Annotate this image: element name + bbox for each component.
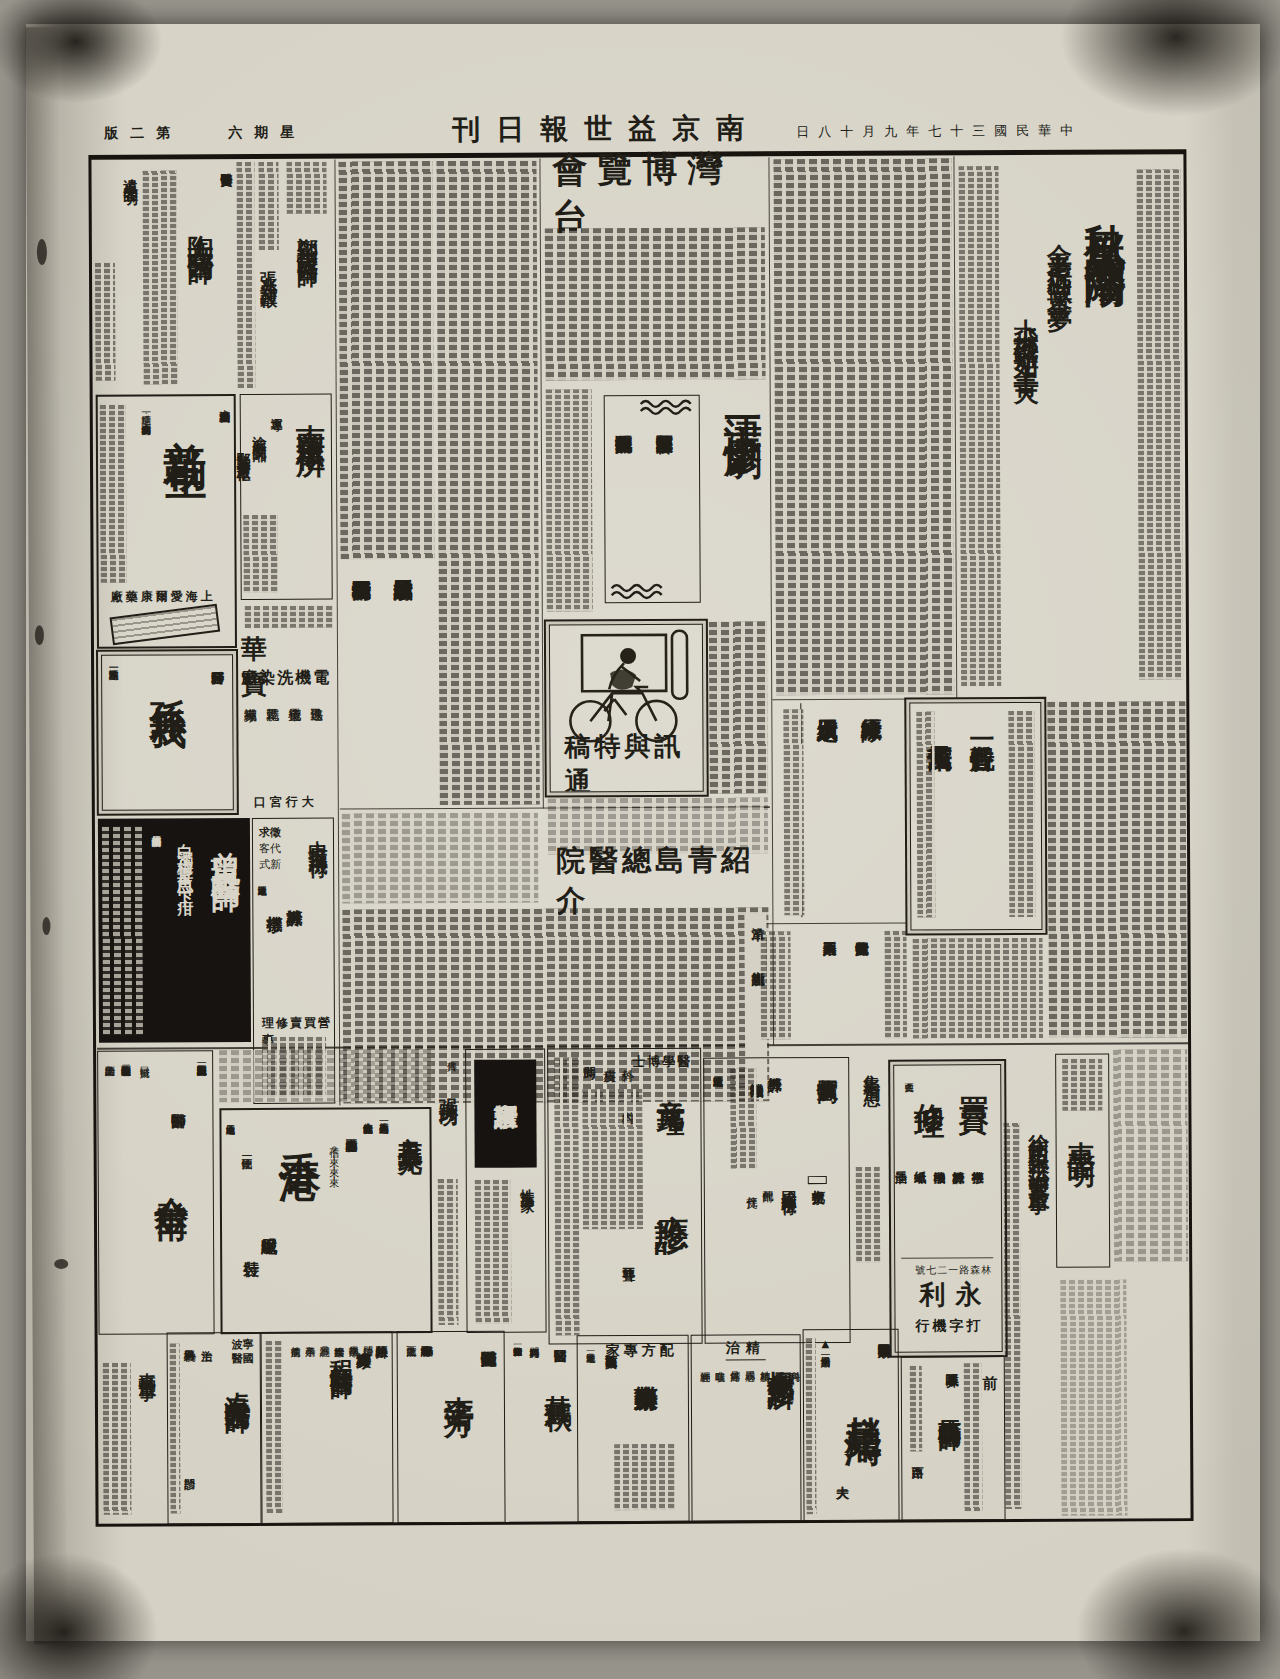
shenyang-article: 秋風裏的瀋陽 金老虎猶做黃金夢 上飛機難如上青天 [956,157,1187,698]
ad-doctor-name: 佘登甫 [153,1169,191,1184]
column-label: 稿特與訊通 [564,729,702,793]
text-columns-texture [964,1363,983,1511]
ad-address: 地址太平路一〇九號 [586,1346,597,1514]
special-column-box: 稿特與訊通 [549,624,704,793]
text-columns-texture [1136,169,1183,679]
ad-pre: 胃病國醫專家 [875,1334,892,1380]
ad-item-list: 內科兒科 花柳痔眼喉 肺癆結核 心腸胃病 筋骨疼痛 咳喘吐血 神經衰弱 [698,1363,804,1514]
text-columns-texture [1062,1059,1102,1111]
ad-zeng-doctor: 曾現忠醫師 白濁梅毒魚口下疳 採用最新科學有效藥法 [98,818,251,1043]
ad-name: 香港 [276,1118,323,1134]
subhead: 津國行收兌黃金 [846,931,879,1041]
text-columns-texture [760,931,791,1039]
text-columns-texture [266,1341,283,1513]
ad-line: 採用最新科學有效藥法 [151,829,163,1033]
subhead: 三週來共十八兩 [814,931,847,1041]
ad-title: 修理 [913,1079,947,1091]
text-columns-texture [342,813,538,904]
text-columns-texture [1008,711,1035,917]
ad-line: 遺精一症：全國藥房均有出售 [141,407,153,577]
subhead: 積極籌備十月廿五揭幕 [341,565,384,801]
subhead: 天津經檢隊 [849,703,894,917]
ad-sub: 行機字打 [916,1317,984,1335]
ad-li-doctor: 金鍼醫師 李靖方 專治中風不語半身不遂 四肢麻木筋骨疼痛 上吐下瀉肚痛 [397,1331,506,1524]
text-columns-texture [245,606,333,628]
text-columns-texture [170,1343,181,1513]
ad-pre: 士博學醫 [632,1053,692,1071]
text-columns-texture [258,162,278,250]
subhead: 四天之成績 [800,703,850,917]
ad-strong-body: 真傳 强身内功 [433,1049,464,1333]
ad-title: 買賣 [957,1073,991,1085]
ad-cheng-doctor: 卅八年經驗 婦科專家 程立卿女醫師 優待門診 指導易孕法 專治婦女暗疾 月經不調… [261,1331,394,1524]
date-line: 日八十月九年七十三國民華中 [796,122,1082,141]
ad-address: 口宮行大 [254,794,318,811]
ad-kangle-pharmacy: 家專方配 康樂藥房 買賣各種西藥 地址太平路一〇九號 [577,1335,690,1523]
ad-tag: 式新 [259,857,281,872]
ad-name: 國光打字機行 [780,1178,797,1190]
ad-yang-clinic: 治精 楊銘芝診所 內科兒科 花柳痔眼喉 肺癆結核 心腸胃病 筋骨疼痛 咳喘吐血 … [691,1334,802,1522]
ad-line: 精治婦女臨前產後一切奇難雜症 [513,1340,524,1518]
ink-smear [37,239,47,265]
ad-line: 四肢麻木筋骨疼痛 [420,1338,432,1514]
ad-address: 號七二一路森林 [915,1263,992,1277]
ad-zheng-doctor: 鄭紹康大醫師 [284,162,331,388]
ad-item: 專治婦女暗疾 [331,1339,346,1515]
ad-item: 蠟紙 [910,1161,930,1247]
subhead: 金老虎猶做黃金夢 [1045,224,1073,296]
ad-item-list: 優待門診 指導易孕法 專治婦女暗疾 月經不調 久婚不孕 產前後病 [288,1338,376,1514]
edition-label: 版二第 [104,124,182,142]
jingjian-subhead: 天津經檢隊 四天之成績 [783,703,904,922]
ad-sun-dentist: 牙科醫師 孫無我 珠江路一零一號左巷內 [101,654,234,811]
taiwan-expo-headline: 會覽博灣台 [552,163,764,222]
text-columns-texture [910,1366,922,1452]
headline-text: 秋風裏的瀋陽 [1082,189,1129,243]
ad-doctor-name: 卓海宗醫師 [223,1371,252,1391]
ad-pre: 醫國 [232,1351,254,1366]
text-columns-texture [286,162,326,214]
text-columns-texture [95,263,116,381]
ad-name: 楊銘芝診所 [765,1349,795,1364]
ad-item: 久婚不孕 [302,1339,317,1515]
ad-title: 集影消息 [862,1061,881,1081]
ad-she-doctor: 上午九至一時在珠江路四和參藥號應診 中醫師 佘登甫 咸賢街口 下午二至四時在大香… [97,1050,214,1335]
corner-shadow [1034,1515,1280,1679]
text-columns-texture [243,515,277,593]
ad-coffin-service: 南京運柩所 專運 渝蘇浙皖湘 鄂贛各省靈柩 [240,394,333,600]
subhead: 軍官醉酒擊斃報差 [644,422,686,582]
text-columns-texture [100,405,127,583]
wave-decoration [610,582,666,600]
ad-sub: 性病專家 [519,1178,535,1190]
ad-huang-doctor: 國醫 黃鶴秋 專門婦科內科兒科 精治婦女臨前產後一切奇難雜症 [507,1335,576,1522]
ad-title: 遺失聲明 [122,167,139,183]
ink-smear [35,625,44,645]
text-columns-texture [546,389,593,611]
text-columns-texture [475,1180,512,1324]
text-columns-texture [913,938,1044,1039]
ad-item: 取件迅速 [305,698,328,790]
ad-baohua-laundry: 華寶 廠染洗機電 取件迅速 電機染色 精工乾洗 專家織補 口宮行大 [241,606,334,812]
ink-smear [42,917,50,935]
ad-address: 地址珠江路中三六五號 [257,879,268,1009]
ad-item: 計算機 [948,1161,968,1247]
page-content: 版二第 六期星 刊日報世益京南 日八十月九年七十三國民華中 遺失聲明 留美醫學博… [0,0,1280,1679]
ad-pre: 波寧 [232,1337,254,1352]
subhead: 醫院拒收死於非命 [603,422,645,582]
ad-che-shengming: 車聲明 [1055,1054,1110,1268]
ad-line: ▲專治男女一切胃病 [820,1338,832,1468]
ad-doctor-name: 章元瑾 [655,1077,686,1089]
ad-item: 月經不調 [317,1339,332,1515]
ad-sched: 咸賢街口 [139,1060,151,1190]
tianjin-tragedy-article: 津市一慘劇 軍官醉酒擊斃報差 醫院拒收死於非命 [546,384,767,615]
ad-line: 白濁梅毒魚口下疳 [176,830,194,894]
text-columns-texture [806,1338,817,1514]
ad-title: 高價收買 [813,1064,841,1116]
ad-name: 張兆新謹啟 [259,258,278,283]
ad-title: 車輛啟事 [138,1359,157,1375]
ad-sub: 廠染洗機電 [241,668,331,689]
ad-doctor-name: 孫無我 [147,669,189,687]
ad-doctor-name: 趙見濤 [841,1386,884,1404]
ad-item: 專家織補 [239,698,262,790]
text-columns-texture [614,1444,674,1510]
taiwan-expo-subheads: 檢討三年來的工作成績 積極籌備十月廿五揭幕 [341,565,436,805]
ad-item: 電機染色 [283,698,306,790]
ad-item: 肺癆結核 [758,1363,774,1513]
text-columns-texture [142,170,177,384]
ad-item: 產前後病 [288,1339,303,1515]
ad-divider [901,1257,993,1258]
subhead: 上飛機難如上青天 [1011,298,1039,370]
ad-doctor-name: 鄭紹康大醫師 [295,220,319,256]
ad-address: 珠江路一零一號左巷內 [108,662,120,806]
ad-yaodong-clinic: 耀東診所 性病專家 [465,1048,546,1332]
ad-item: 油墨 [891,1162,911,1248]
gold-exchange-subhead: 津國行收兌黃金 三週來共十八兩 [760,929,907,1044]
ad-body: 服裝乃為人生藝術之一 [378,1115,390,1327]
text-columns-texture [709,621,768,793]
ad-tagline: 主治遺精神經衰弱良藥！ [217,402,230,562]
ad-item: 心腸胃病 [743,1363,759,1513]
ad-tag: 求徵 [259,825,281,840]
ad-lost-notice: 遺失聲明 [94,163,141,387]
ad-item: 優待門診 [360,1338,375,1514]
text-columns-texture [582,1089,643,1229]
ad-line: 不信？來！來！來！ [328,1140,339,1180]
ad-zhuo-doctor: 波寧 醫國 卓海宗醫師 主治 內外科 男婦小兒科 門診 [167,1332,262,1524]
text-columns-texture [730,1068,757,1168]
text-columns-texture [554,1057,579,1335]
ink-smear [54,1259,68,1269]
ad-item: 神經衰弱 [698,1364,714,1514]
ad-name: 利永 [919,1277,991,1312]
text-columns-texture [916,711,935,917]
ad-tao-doctor: 留美醫學博士 陶志女醫師 [142,162,255,389]
ad-body: 能使人興奮亦能令人懊喪 [362,1115,374,1327]
ad-name2: 應診 [653,1187,691,1199]
ad-slogan: 衣是豪光！ [395,1117,423,1162]
qingdao-hospital-headline: 院醫總島青紹介 [556,857,768,904]
ad-hongkong-tailor: 衣是豪光！ 服裝乃為人生藝術之一 能使人興奮亦能令人懊喪 香港五虎名師 不信？來… [219,1107,432,1334]
text-columns-texture [102,827,143,1035]
ad-pre: 眼耳鼻喉 [943,1363,959,1397]
text-columns-texture [1113,1049,1188,1261]
incense-story-box: 一炷觀音香 價值千萬元 [909,702,1042,931]
ad-address: 地址珠江路東段五七三號 [712,1069,725,1335]
newspaper-title: 刊日報世益京南 [452,109,760,149]
text-columns-texture [856,1167,881,1263]
wave-decoration [639,398,695,416]
ad-name: 中央打字機行 [308,825,329,849]
text-columns-texture [1047,701,1187,1038]
text-columns-texture [219,1049,431,1102]
ad-item: 精工乾洗 [261,698,284,790]
text-columns-texture [773,158,954,695]
ad-title: 徐州中央銀行王治安緊要啟事 [1026,1117,1050,1182]
ad-pulesheng-medicine: 主治遺精神經衰弱良藥！ 普勒生 遺精一症：全國藥房均有出售 廠藥康爾愛海上 [96,394,237,649]
ad-doctor-name: 曾現忠醫師 [209,828,242,868]
ad-tag: 客代 [259,841,281,856]
ad-doctor-name: 陶志女醫師 [186,214,215,244]
ad-doctor-name: 黃鶴秋 [543,1373,573,1388]
medicine-box-illustration [110,604,221,645]
ad-line: 鄂贛各省靈柩 [235,441,251,459]
ad-name: 康樂藥房 [629,1366,662,1426]
ad-jiying: 集影消息 [851,1057,888,1269]
ad-name: 南京運柩所 [294,401,327,431]
text-columns-texture [338,161,434,559]
ad-che-qishi: 車輛啟事 [101,1355,164,1523]
ad-item: 打字機 [967,1161,987,1247]
ad-sched: 下午二至四時在大香爐小板巷八號 [120,1058,133,1328]
weekday-label: 六期星 [228,124,306,142]
text-columns-texture [884,931,907,1039]
ad-sub: 中文打字机 [808,1176,827,1184]
text-columns-texture [958,166,1001,686]
ad-zhang-yuanjin: 士博學醫 章元瑾 應診 外科 內科 皮膚科 耳聾 時間 [547,1048,703,1345]
text-columns-texture [103,1363,132,1515]
text-columns-texture [236,162,255,388]
ad-maker: 廠藥康爾愛海上 [111,588,216,606]
ad-sched: 時出診上午面約 [104,1058,116,1238]
text-columns-texture [545,227,766,380]
ad-product-name: 普勒生 [162,404,210,431]
ad-line: 專門婦科內科兒科 [529,1340,541,1516]
ad-item: 筋骨疼痛 [728,1363,744,1513]
corner-shadow [0,1521,195,1679]
text-columns-texture [783,709,804,915]
subhead: 檢討三年來的工作成績 [382,565,425,801]
ad-yongli-typewriter: 買賣 修理 各式中西文 打字機 計算機 油印機 蠟紙 油墨 號七二一路森林 利永… [893,1064,1003,1353]
text-columns-texture [438,1179,459,1325]
text-columns-texture [436,161,539,806]
ad-item: 咳喘吐血 [713,1364,729,1514]
headline-text: 會覽博灣台 [552,145,764,240]
ad-guoguang-typewriter: 高價收買 計算機 油印機 中文打字机 國光打字機行 代配附件 代打文件 地址珠江… [703,1057,850,1344]
ad-sched: 上午九至一時在珠江路四和參藥號應診 [196,1057,209,1327]
ad-pre: 牙科醫師 [210,661,225,721]
ad-doctor-name: 李靖方 [442,1372,476,1387]
ad-item: 指導易孕法 [346,1338,361,1514]
ad-pre: 治精 [726,1339,766,1360]
ad-doctor-name: 馬鎮西醫師 [936,1401,962,1411]
ad-name: 耀東診所 [491,1085,520,1143]
ad-item-list: 打字機 計算機 油印機 蠟紙 油墨 [891,1161,987,1248]
ad-name: 强身内功 [438,1083,459,1095]
ad-pre: 卅八年經驗 [374,1336,388,1516]
ad-xuzhou-bank-notice: 徐州中央銀行王治安緊要啟事 [1001,1113,1055,1519]
ad-ma-doctor: 前 眼耳鼻喉 馬鎮西醫師 白下路 [901,1356,1006,1521]
ad-item: 油印機 [929,1161,949,1247]
headline-text: 津市一慘劇 [721,386,764,416]
binding-shadow [26,27,68,1644]
ad-title: 車聲明 [1065,1119,1097,1149]
ad-zhao-doctor: 胃病國醫專家 趙見濤 大夫 ▲專治男女一切胃病 [803,1329,900,1522]
ad-zhang-zhao: 張兆新謹啟 [254,162,285,388]
ad-service-list: 取件迅速 電機染色 精工乾洗 專家織補 [239,698,328,790]
ad-item: 花柳痔眼喉 [773,1363,789,1513]
text-columns-texture [1003,1123,1021,1509]
text-columns-texture [1060,1279,1127,1515]
ad-item: 內科兒科 [788,1363,804,1513]
ad-line: 渝蘇浙皖湘 [251,425,267,440]
ad-line: 上吐下瀉肚痛 [406,1338,418,1488]
subhead: 一炷觀音香 [960,725,1003,905]
ad-address: 地址中山北路二六四號 [225,1118,236,1328]
